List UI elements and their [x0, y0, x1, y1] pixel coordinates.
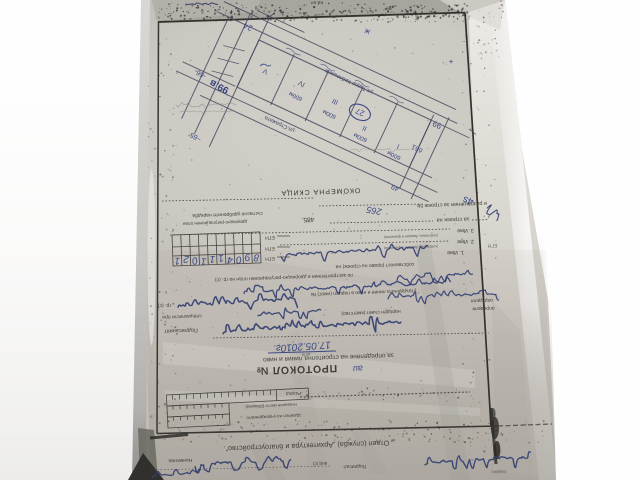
svg-text:(подпис): (подпис)	[491, 469, 507, 474]
svg-text:Разред: Разред	[286, 391, 301, 397]
svg-text:ЕГН: ЕГН	[265, 234, 275, 240]
svg-text:вид (с): вид (с)	[312, 461, 327, 467]
svg-text:2. Име: 2. Име	[457, 238, 474, 245]
svg-text:Наименов.: Наименов.	[167, 457, 192, 464]
svg-text:пи.еп: пи.еп	[310, 0, 323, 5]
svg-text:2: 2	[183, 253, 191, 264]
svg-text:Подписал: Подписал	[343, 463, 366, 470]
svg-text:+: +	[448, 57, 453, 66]
svg-text:485.: 485.	[301, 215, 314, 222]
svg-text:1: 1	[201, 255, 207, 266]
svg-text:1: 1	[210, 253, 216, 264]
svg-text:определя: определя	[471, 297, 494, 304]
svg-text:ЕГН: ЕГН	[265, 245, 275, 251]
svg-text:за строеж на: за строеж на	[436, 216, 470, 223]
svg-text:гр. (с): гр. (с)	[157, 302, 171, 308]
svg-text:1: 1	[174, 255, 180, 266]
svg-text:3. Име: 3. Име	[457, 227, 474, 234]
svg-text:аи: аи	[352, 363, 363, 374]
svg-text:ЕГН: ЕГН	[265, 255, 275, 261]
svg-text:1. Име: 1. Име	[447, 249, 464, 256]
svg-text:определя: определя	[472, 305, 495, 312]
svg-text:ЕГН: ЕГН	[487, 242, 497, 248]
svg-text:Подписаният: Подписаният	[164, 327, 198, 334]
